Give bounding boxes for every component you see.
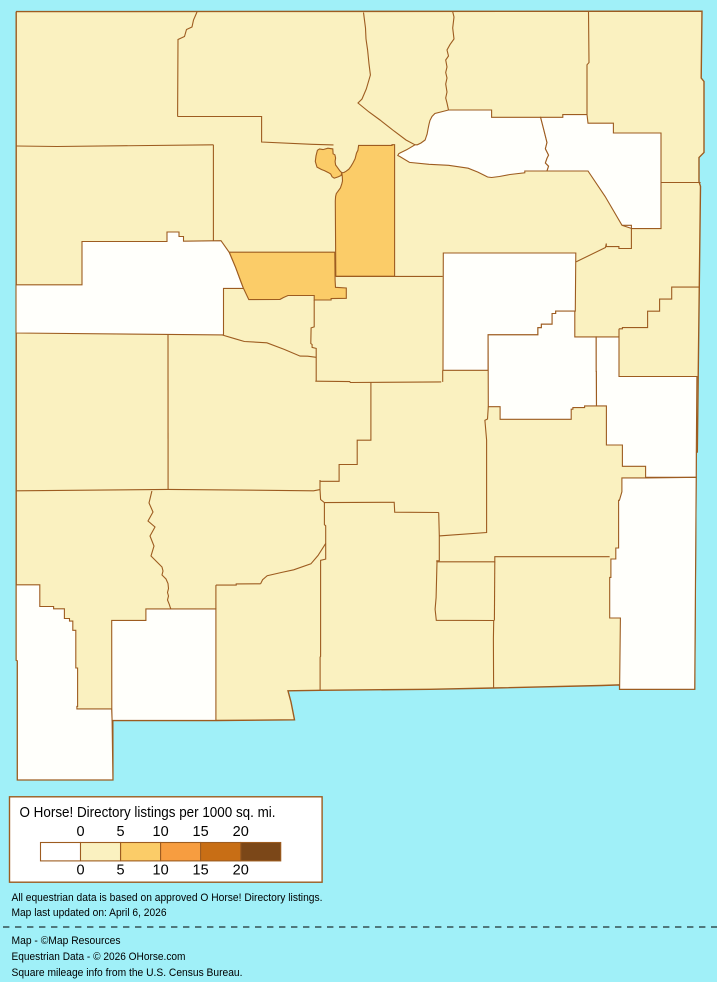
svg-text:Map last updated on: April 6,: Map last updated on: April 6, 2026 xyxy=(12,907,167,919)
svg-text:0: 0 xyxy=(76,863,84,879)
svg-text:15: 15 xyxy=(193,863,209,879)
svg-text:10: 10 xyxy=(153,824,169,840)
svg-text:0: 0 xyxy=(76,824,84,840)
svg-text:5: 5 xyxy=(117,863,125,879)
svg-text:O Horse! Directory listings pe: O Horse! Directory listings per 1000 sq.… xyxy=(20,805,276,821)
svg-text:Square mileage info from the U: Square mileage info from the U.S. Census… xyxy=(12,967,243,979)
svg-text:All equestrian data is based o: All equestrian data is based on approved… xyxy=(12,892,323,904)
svg-text:5: 5 xyxy=(117,824,125,840)
svg-text:10: 10 xyxy=(153,863,169,879)
svg-text:Map - ©Map Resources: Map - ©Map Resources xyxy=(12,935,122,947)
svg-text:20: 20 xyxy=(233,863,249,879)
svg-text:15: 15 xyxy=(193,824,209,840)
svg-text:20: 20 xyxy=(233,824,249,840)
svg-text:Equestrian Data - © 2026 OHors: Equestrian Data - © 2026 OHorse.com xyxy=(12,951,186,963)
